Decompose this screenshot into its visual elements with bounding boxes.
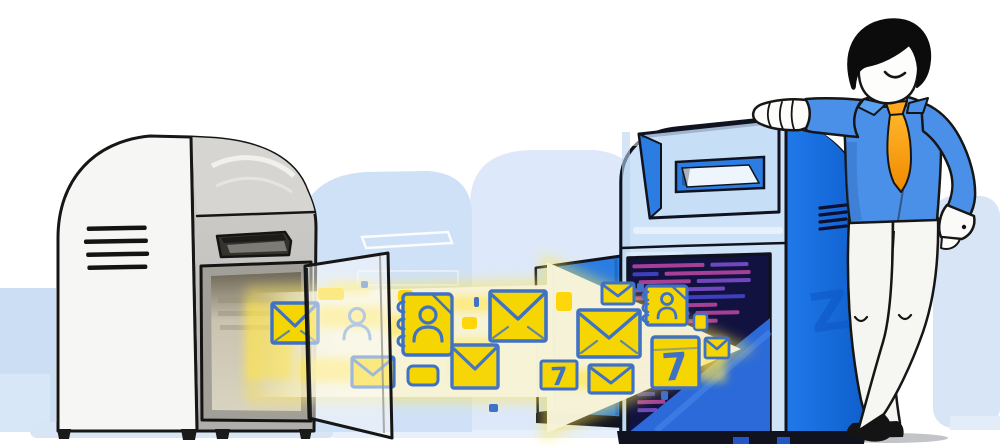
mail-slot-opening bbox=[682, 165, 759, 187]
cuff-button bbox=[962, 225, 966, 229]
new-mailbox-highlight-2 bbox=[633, 227, 783, 234]
ground-shadow-right bbox=[950, 416, 1000, 430]
old-mail-slot bbox=[217, 232, 291, 257]
envelope-icon bbox=[589, 365, 633, 393]
envelope-icon bbox=[490, 291, 546, 341]
old-mailbox-dome bbox=[191, 137, 315, 216]
old-mailbox-front bbox=[58, 136, 197, 431]
calendar-day-large: 7 bbox=[660, 344, 689, 390]
old-door-panel bbox=[305, 253, 392, 438]
old-mailbox-door bbox=[305, 253, 392, 438]
new-mailbox-slot-recess bbox=[639, 119, 779, 218]
email-migration-illustration: Z bbox=[0, 0, 1000, 445]
contact-book-icon bbox=[643, 286, 687, 325]
envelope-icon bbox=[578, 310, 640, 357]
contact-book-icon bbox=[398, 294, 452, 355]
calendar-icon: 7 bbox=[652, 337, 699, 390]
new-mailbox-foot-2 bbox=[777, 437, 790, 444]
envelope-icon bbox=[602, 283, 634, 304]
envelope-icon bbox=[705, 338, 729, 358]
envelope-icon bbox=[452, 345, 498, 388]
calendar-icon: 7 bbox=[541, 361, 577, 391]
pants-fly-line bbox=[893, 231, 894, 248]
new-mailbox-foot-1 bbox=[733, 437, 749, 444]
illustration-canvas: Z bbox=[0, 0, 1000, 445]
calendar-day-small: 7 bbox=[550, 362, 568, 392]
